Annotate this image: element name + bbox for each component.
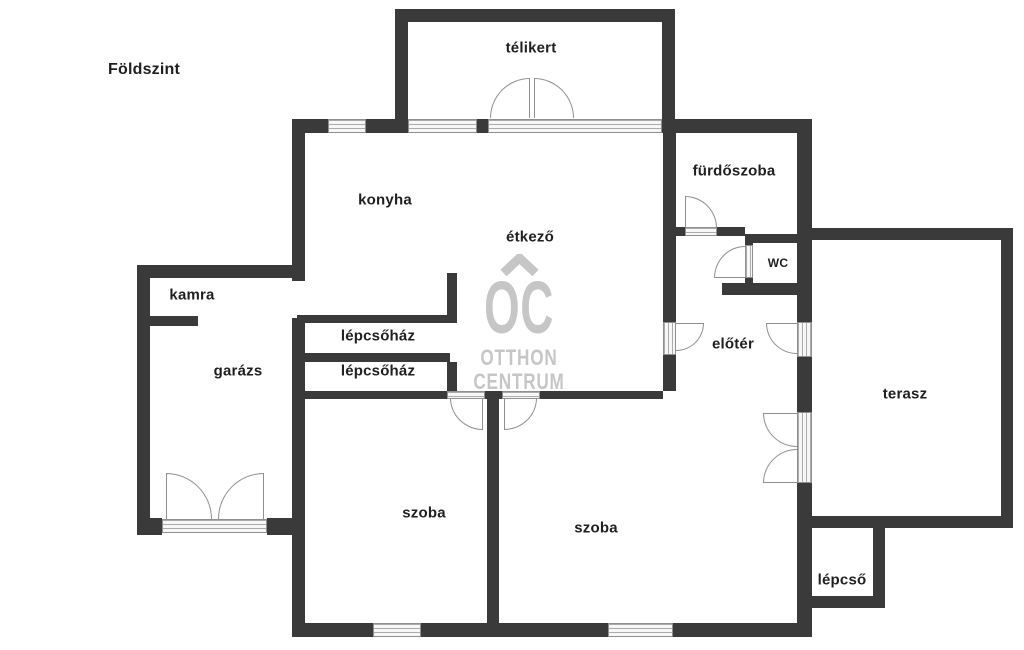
watermark-line1: OTTHON <box>480 347 557 369</box>
wall <box>810 228 1013 240</box>
door-leaf <box>529 78 530 118</box>
watermark: OC OTTHON CENTRUM <box>461 254 578 394</box>
door-swing-arc <box>218 473 264 519</box>
door-swing-arc <box>490 78 530 118</box>
room-label-lepcsohaz-also: lépcsőház <box>341 363 415 380</box>
room-label-lepcsohaz-felso: lépcsőház <box>341 328 415 345</box>
wall <box>745 234 808 243</box>
door-leaf <box>166 473 167 519</box>
floor-plan: Földszint <box>0 0 1024 650</box>
wall <box>810 596 885 608</box>
window <box>328 119 366 133</box>
door-leaf <box>482 398 483 430</box>
window <box>408 119 477 133</box>
room-label-szoba-jobb: szoba <box>574 520 618 537</box>
wall <box>477 119 488 133</box>
wall <box>267 518 305 535</box>
wall <box>447 362 457 392</box>
wall <box>797 119 812 322</box>
wall <box>366 119 408 133</box>
door-swing-arc <box>450 398 483 430</box>
wall <box>292 623 373 637</box>
wall <box>717 227 745 236</box>
door-frame <box>685 227 717 236</box>
wall <box>421 623 608 637</box>
wall <box>485 391 502 399</box>
door-leaf <box>534 78 535 118</box>
window <box>608 623 673 637</box>
wall <box>487 399 499 623</box>
door-swing-arc <box>676 323 704 351</box>
door-swing-arc <box>763 449 797 483</box>
door-swing-arc <box>685 196 717 228</box>
wall <box>150 316 198 326</box>
door-leaf <box>676 323 704 324</box>
wall <box>722 283 798 295</box>
wall <box>1001 228 1013 528</box>
door-leaf <box>766 323 797 324</box>
door-frame <box>663 322 676 355</box>
room-label-terasz: terasz <box>883 386 928 403</box>
room-label-telikert: télikert <box>506 40 557 57</box>
door-frame <box>797 412 812 483</box>
door-leaf <box>763 482 797 483</box>
door-frame <box>797 322 812 357</box>
watermark-line2: CENTRUM <box>473 371 564 393</box>
door-leaf <box>685 196 686 228</box>
watermark-logo-text: OC <box>484 278 554 339</box>
wall <box>137 518 162 535</box>
wall <box>137 265 297 278</box>
door-leaf <box>263 473 264 519</box>
room-label-lepcso: lépcső <box>818 572 867 589</box>
room-label-wc: wc <box>768 256 788 270</box>
window <box>488 119 662 133</box>
wall <box>673 623 812 637</box>
room-label-furdoszoba: fürdőszoba <box>693 163 776 180</box>
room-label-konyha: konyha <box>358 192 412 209</box>
wall <box>292 318 305 637</box>
wall <box>447 273 457 315</box>
door-swing-arc <box>504 398 537 430</box>
wall <box>540 391 663 399</box>
door-frame <box>745 245 753 278</box>
room-label-garazs: garázs <box>214 363 263 380</box>
wall <box>662 119 812 133</box>
wall <box>395 9 675 22</box>
room-label-etkezo: étkező <box>506 229 554 246</box>
door-leaf <box>504 398 505 430</box>
page-title: Földszint <box>108 61 180 79</box>
wall <box>297 353 450 362</box>
door-leaf <box>763 413 797 414</box>
door-leaf <box>714 277 745 278</box>
wall <box>395 22 408 119</box>
room-label-kamra: kamra <box>169 287 214 304</box>
wall <box>745 234 753 245</box>
door-swing-arc <box>534 78 574 118</box>
wall <box>662 22 675 119</box>
wall <box>292 119 305 281</box>
wall <box>810 516 1013 528</box>
wall <box>797 483 812 637</box>
wall <box>797 357 812 412</box>
door-swing-arc <box>763 413 797 447</box>
wall <box>297 315 457 323</box>
room-label-szoba-bal: szoba <box>402 505 446 522</box>
window <box>373 623 421 637</box>
wall <box>297 391 447 399</box>
door-swing-arc <box>766 323 797 354</box>
wall <box>137 265 150 535</box>
room-label-eloter: előtér <box>712 336 754 353</box>
wall <box>663 355 676 391</box>
wall <box>663 227 685 236</box>
door-swing-arc <box>714 246 745 278</box>
door-swing-arc <box>166 473 212 519</box>
door-frame <box>162 519 267 533</box>
